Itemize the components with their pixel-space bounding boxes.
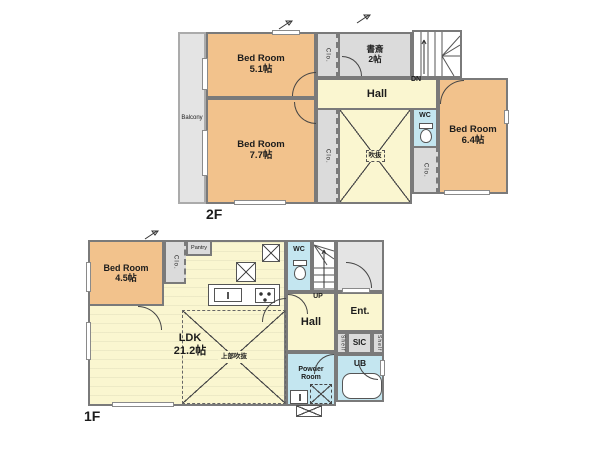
front-door-leaf (342, 288, 370, 293)
floor-label-1f: 1F (84, 408, 100, 424)
bedroom-6-4-size: 6.4帖 (462, 136, 485, 147)
closet-2f-b-label: Clo. (422, 163, 429, 178)
washbasin-icon (290, 390, 308, 404)
window (86, 322, 91, 360)
hall-2f-label: Hall (367, 88, 387, 101)
window (272, 30, 300, 35)
floor-plan-canvas: Balcony Bed Room 5.1帖 Clo. 書斎 2帖 (0, 0, 600, 449)
window (234, 200, 286, 205)
ldk-size: 21.2帖 (174, 345, 206, 357)
study-size: 2帖 (368, 55, 381, 65)
shelf-left-label: Shelf (339, 335, 345, 351)
stairs-down-icon (414, 32, 460, 76)
dn-label: DN (402, 76, 430, 84)
closet-1f: Clo. (164, 240, 186, 284)
wc-1f: WC (286, 240, 312, 292)
hatch-box (262, 244, 280, 262)
kitchen-sink-icon (214, 288, 242, 302)
ldk-label: LDK 21.2帖 (150, 332, 230, 357)
vent-flag-icon (278, 18, 294, 30)
window (444, 190, 490, 195)
closet-2f-a: Clo. (316, 32, 338, 78)
wc-1f-label: WC (293, 246, 305, 254)
staircase-1f (312, 240, 336, 292)
wc-2f-label: WC (419, 112, 431, 120)
window (202, 58, 208, 90)
closet-2f-a-label: Clo. (324, 48, 331, 63)
bedroom-7-7-size: 7.7帖 (250, 151, 273, 162)
shelf-right-label: Shelf (375, 335, 381, 351)
window (112, 402, 174, 407)
sic-label: SIC (353, 338, 366, 347)
balcony-label: Balcony (181, 115, 202, 122)
step-box (296, 405, 322, 417)
pantry: Pantry (186, 240, 212, 256)
bedroom-4-5-name: Bed Room (104, 263, 149, 273)
void-2f: 吹抜 (338, 108, 412, 204)
wc-2f: WC (412, 108, 438, 148)
floor-label-2f: 2F (206, 206, 222, 222)
kitchen-counter (208, 284, 280, 306)
closet-1f-label: Clo. (172, 255, 179, 270)
window (86, 262, 91, 292)
bedroom-4-5: Bed Room 4.5帖 (88, 240, 164, 306)
vent-flag-icon (356, 12, 372, 24)
window (202, 130, 208, 176)
void-2f-label: 吹抜 (366, 150, 385, 161)
staircase-2f (412, 30, 462, 78)
stove-icon (255, 288, 275, 303)
pantry-label: Pantry (191, 245, 207, 251)
closet-2f-c: Clo. (316, 108, 338, 204)
toilet-icon (418, 123, 434, 145)
hall-1f-label: Hall (301, 316, 321, 329)
entrance-label: Ent. (351, 306, 370, 318)
ldk-name: LDK (179, 332, 202, 344)
entrance: Ent. (336, 292, 384, 332)
washer-pan-icon (310, 384, 332, 404)
bedroom-4-5-size: 4.5帖 (115, 273, 137, 283)
stairs-up-icon (314, 242, 334, 290)
hatch-box (236, 262, 256, 282)
bedroom-5-1-size: 5.1帖 (250, 65, 273, 76)
up-label: UP (304, 293, 332, 301)
shoe-in-closet: SIC (347, 332, 372, 354)
shelf-right: Shelf (372, 332, 384, 354)
toilet-icon (292, 260, 308, 282)
window (380, 360, 385, 376)
window (504, 110, 509, 124)
vent-flag-icon (144, 228, 160, 240)
closet-2f-b: Clo. (412, 146, 438, 194)
shelf-left: Shelf (336, 332, 347, 354)
closet-2f-c-label: Clo. (324, 149, 331, 164)
